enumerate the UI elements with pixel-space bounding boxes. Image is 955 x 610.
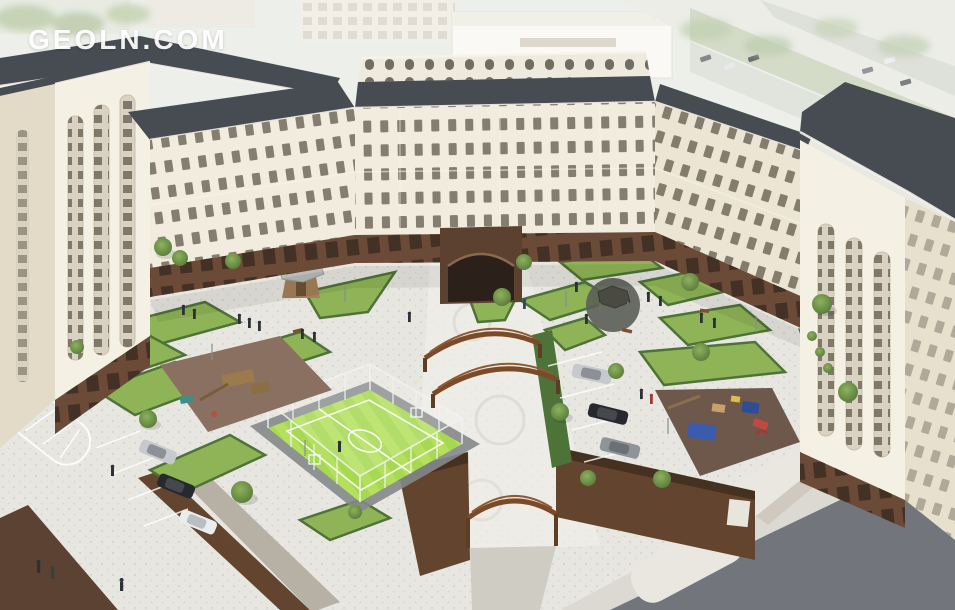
tower-window-strips xyxy=(818,224,890,457)
tree xyxy=(838,382,858,402)
person xyxy=(585,314,588,324)
play-item-yellow xyxy=(731,395,741,402)
person xyxy=(37,560,41,573)
tree xyxy=(653,470,671,488)
person xyxy=(647,292,650,302)
tree xyxy=(70,340,84,354)
person xyxy=(523,299,526,309)
tower-window-strips xyxy=(68,95,135,360)
play-structure-blue xyxy=(741,401,759,414)
person xyxy=(313,332,316,342)
play-item xyxy=(211,411,217,417)
tree xyxy=(692,343,710,361)
tree xyxy=(580,470,596,486)
tree xyxy=(516,254,532,270)
tree xyxy=(493,288,511,306)
person xyxy=(238,314,241,324)
entrance-archway xyxy=(440,226,522,304)
person xyxy=(640,389,643,399)
tree xyxy=(348,505,362,519)
wall-door xyxy=(727,499,751,527)
person xyxy=(700,313,703,323)
scene-svg xyxy=(0,0,955,610)
person xyxy=(301,329,304,339)
tree xyxy=(681,273,699,291)
person xyxy=(51,566,55,579)
person xyxy=(659,296,662,306)
person xyxy=(193,309,196,319)
person xyxy=(338,441,342,452)
tree xyxy=(225,253,241,269)
geoln-watermark: GEOLN.COM xyxy=(28,24,228,56)
person xyxy=(650,394,653,404)
person xyxy=(120,578,124,591)
aerial-render: GEOLN.COM xyxy=(0,0,955,610)
person xyxy=(111,465,115,476)
tree xyxy=(608,363,624,379)
person xyxy=(408,312,411,322)
tree xyxy=(172,250,188,266)
person xyxy=(258,321,261,331)
person xyxy=(575,282,578,292)
person xyxy=(248,318,251,328)
person xyxy=(713,318,716,328)
person xyxy=(182,305,185,315)
left-wing xyxy=(128,82,355,297)
